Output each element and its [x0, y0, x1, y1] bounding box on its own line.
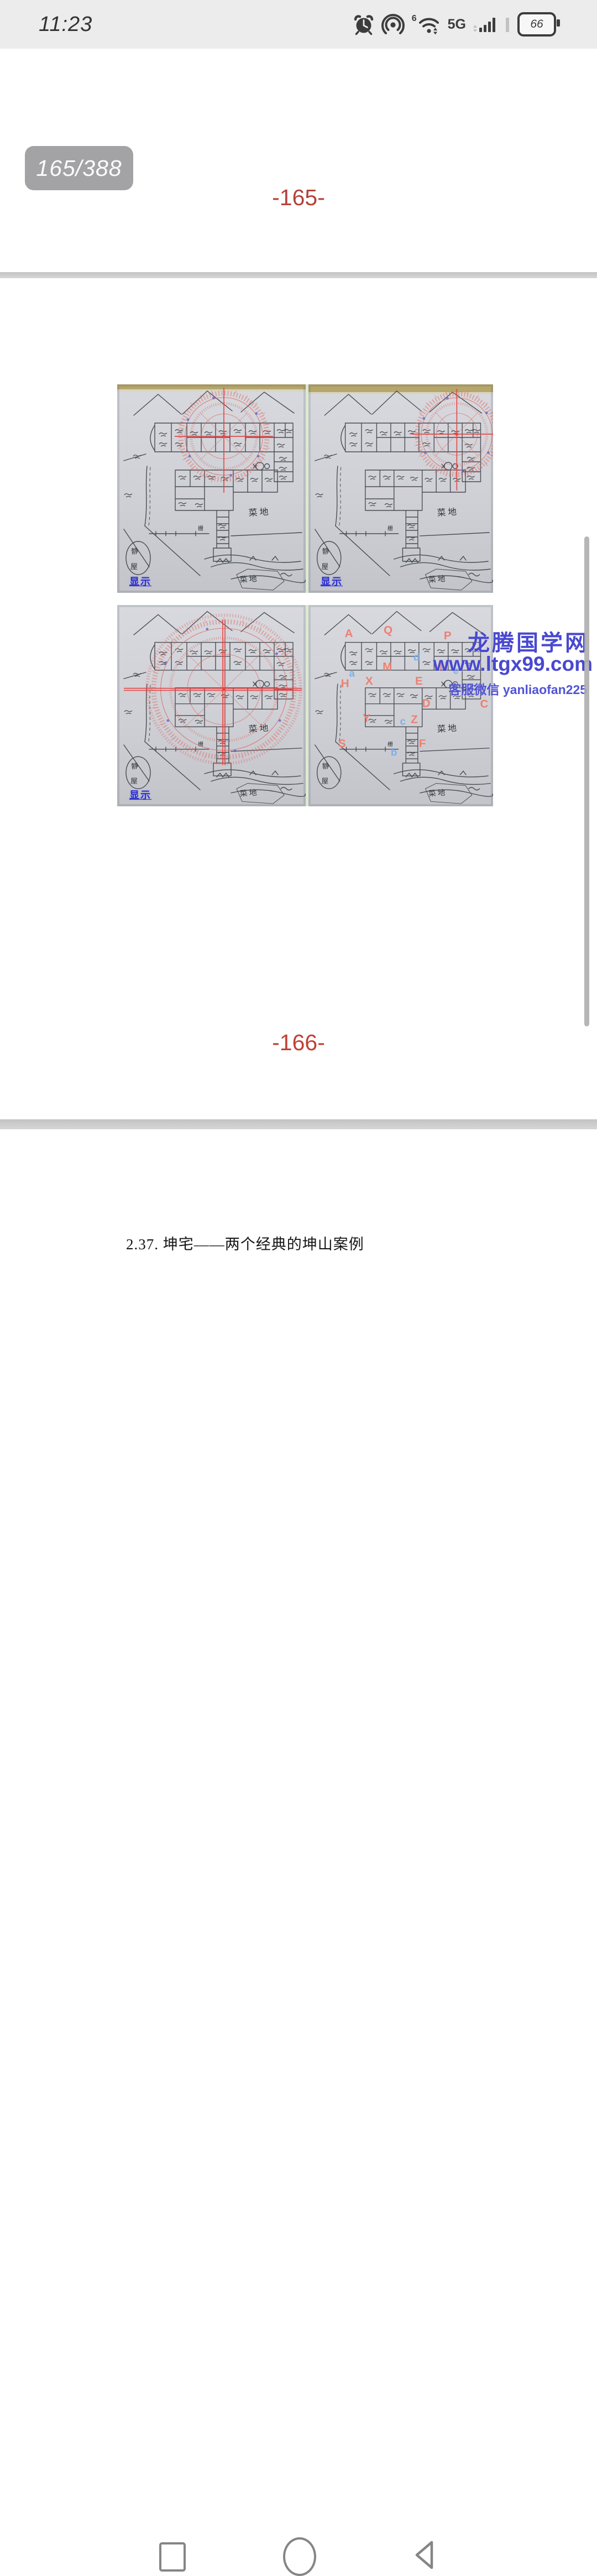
status-icons: 6 5G 66	[353, 12, 556, 36]
printed-page-number-165: -165-	[0, 185, 597, 211]
watermark-wechat-contact: 客服微信 yanliaofan225	[448, 679, 587, 698]
page-gap-divider	[0, 272, 597, 278]
svg-text:H: H	[341, 678, 349, 690]
status-bar: 11:23 6 5G	[0, 0, 597, 49]
hand-drawn-floor-plan: 菜地 菜地 静 屋 栅	[308, 384, 493, 593]
clock-time: 11:23	[39, 13, 92, 36]
battery-icon: 66	[517, 12, 556, 36]
printed-page-number-166: -166-	[0, 1030, 597, 1056]
svg-text:菜地: 菜地	[239, 789, 259, 798]
svg-text:栅: 栅	[387, 525, 393, 532]
show-link[interactable]: 显示	[129, 788, 151, 802]
svg-text:菜地: 菜地	[248, 723, 271, 734]
page-progress-text: 165/388	[36, 155, 122, 181]
svg-text:菜地: 菜地	[428, 788, 447, 797]
svg-text:菜地: 菜地	[437, 723, 459, 734]
svg-text:屋: 屋	[130, 777, 138, 785]
hand-drawn-floor-plan: 菜地 菜地 静 屋 栅	[117, 384, 306, 593]
wifi6-badge: 6	[412, 14, 417, 24]
svg-text:P: P	[444, 630, 452, 642]
plan-image-top-right: 菜地 菜地 静 屋 栅 显示	[308, 384, 493, 593]
svg-text:Y: Y	[363, 713, 370, 725]
show-link[interactable]: 显示	[129, 574, 151, 588]
svg-text:b: b	[391, 746, 397, 758]
svg-text:E: E	[415, 675, 423, 687]
section-title: 2.37. 坤宅——两个经典的坤山案例	[126, 1232, 364, 1254]
svg-text:栅: 栅	[198, 525, 203, 532]
svg-text:静: 静	[130, 546, 139, 556]
svg-text:菜地: 菜地	[428, 574, 447, 584]
svg-text:静: 静	[322, 546, 330, 556]
plan-image-bottom-left: 菜地 菜地 静 屋 栅 显示	[117, 605, 306, 806]
hotspot-icon	[381, 13, 405, 36]
svg-text:D: D	[422, 698, 431, 710]
page-progress-badge: 165/388	[25, 146, 133, 190]
svg-text:a: a	[349, 668, 355, 679]
svg-text:屋: 屋	[130, 562, 138, 571]
wifi-icon: 6	[412, 13, 441, 36]
page-gap-divider	[0, 1119, 597, 1129]
signal-bars-icon	[473, 13, 498, 36]
scrollbar-thumb[interactable]	[584, 536, 589, 1026]
hand-drawn-floor-plan-lettered: 菜地 菜地 静 屋 栅 AQPdMNeaHXEDCYcZSFb	[308, 605, 493, 806]
svg-text:S: S	[338, 738, 346, 750]
show-link[interactable]: 显示	[321, 574, 343, 588]
svg-text:A: A	[345, 628, 353, 640]
svg-text:屋: 屋	[322, 562, 329, 571]
back-button[interactable]	[412, 2540, 436, 2570]
svg-text:X: X	[365, 675, 373, 687]
svg-text:屋: 屋	[322, 778, 329, 785]
network-type-label: 5G	[448, 17, 466, 33]
svg-text:M: M	[383, 661, 392, 673]
svg-text:c: c	[400, 715, 406, 727]
home-button[interactable]	[283, 2537, 316, 2576]
svg-text:Z: Z	[411, 714, 418, 726]
sim2-signal-icon	[505, 13, 510, 36]
plan-image-top-left: 菜地 菜地 静 屋 栅 显示	[117, 384, 306, 593]
battery-level: 66	[530, 18, 543, 31]
svg-text:静: 静	[322, 762, 330, 771]
android-nav-bar	[0, 1261, 597, 1327]
svg-text:菜地: 菜地	[248, 507, 271, 518]
recents-button[interactable]	[159, 2542, 186, 2572]
svg-text:d: d	[413, 651, 420, 663]
plan-image-bottom-right: 菜地 菜地 静 屋 栅 AQPdMNeaHXEDCYcZSFb	[308, 605, 493, 806]
svg-text:菜地: 菜地	[437, 507, 459, 518]
svg-text:C: C	[480, 698, 488, 711]
alarm-icon	[353, 13, 374, 36]
svg-text:Q: Q	[384, 624, 392, 637]
svg-text:菜地: 菜地	[239, 574, 259, 584]
hand-drawn-floor-plan: 菜地 菜地 静 屋 栅	[117, 605, 306, 806]
svg-text:静: 静	[130, 762, 139, 770]
svg-text:F: F	[419, 738, 426, 750]
watermark-site-url: www.ltgx99.com	[433, 653, 593, 676]
